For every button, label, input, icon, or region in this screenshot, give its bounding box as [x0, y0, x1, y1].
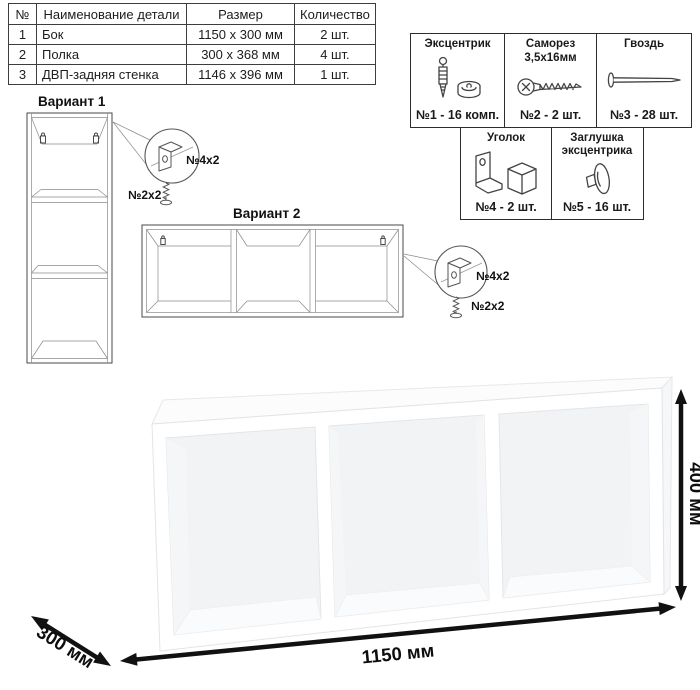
shelf-compartment-2	[329, 415, 489, 617]
col-header-name: Наименование детали	[37, 4, 187, 25]
variant1-inner-frame	[32, 113, 108, 363]
hardware-subtitle: 3,5х16мм	[524, 52, 576, 66]
hardware-title: Гвоздь	[624, 38, 664, 50]
shelf-compartment-3	[499, 404, 650, 598]
part-size: 1146 х 396 мм	[187, 65, 295, 85]
dimension-height: 400 мм	[675, 389, 700, 601]
part-num: 1	[9, 25, 37, 45]
hardware-count: №4 - 2 шт.	[475, 200, 536, 214]
part-name: Бок	[37, 25, 187, 45]
variant1-cabinet-outline	[27, 113, 112, 363]
hardware-title: Саморез	[526, 38, 575, 50]
hardware-count: №2 - 2 шт.	[520, 108, 581, 122]
part-name: ДВП-задняя стенка	[37, 65, 187, 85]
variant1-detail-callout: №4х2 №2х2	[113, 122, 220, 205]
width-dimension-label: 1150 мм	[361, 640, 435, 668]
part-name: Полка	[37, 45, 187, 65]
parts-table-header-row: № Наименование детали Размер Количество	[9, 4, 376, 25]
hardware-item-cam-cap: Заглушкаэксцентрика №5 - 16 шт.	[551, 127, 644, 220]
variant2-inner-frame	[147, 230, 399, 313]
col-header-size: Размер	[187, 4, 295, 25]
hardware-item-corner-bracket: Уголок №4 - 2 шт.	[460, 127, 552, 220]
part-size: 1150 х 300 мм	[187, 25, 295, 45]
col-header-qty: Количество	[295, 4, 376, 25]
shelf-compartment-1	[166, 427, 321, 635]
table-row: 1 Бок 1150 х 300 мм 2 шт.	[9, 25, 376, 45]
variant2-bracket-left-icon	[161, 236, 165, 245]
hardware-item-nail: Гвоздь №3 - 28 шт.	[596, 33, 692, 128]
height-dimension-label: 400 мм	[686, 462, 700, 525]
hardware-item-eccentric: Эксцентрик	[410, 33, 505, 128]
variant2-bracket-callout: №4х2	[476, 269, 510, 283]
nail-icon	[604, 52, 684, 108]
hardware-count: №5 - 16 шт.	[563, 200, 631, 214]
variant2-detail-callout: №4х2 №2х2	[404, 246, 510, 318]
part-num: 3	[9, 65, 37, 85]
variant2-bracket-right-icon	[381, 236, 385, 245]
variant2-screw-callout: №2х2	[471, 299, 505, 313]
part-qty: 2 шт.	[295, 25, 376, 45]
parts-table: № Наименование детали Размер Количество …	[8, 3, 376, 85]
variant1-screw-callout: №2х2	[128, 188, 162, 202]
hardware-count: №3 - 28 шт.	[610, 108, 678, 122]
part-qty: 4 шт.	[295, 45, 376, 65]
variant1-drawing: Вариант 1	[27, 94, 220, 363]
table-row: 3 ДВП-задняя стенка 1146 х 396 мм 1 шт.	[9, 65, 376, 85]
variant1-bracket-callout: №4х2	[186, 153, 220, 167]
part-qty: 1 шт.	[295, 65, 376, 85]
part-size: 300 х 368 мм	[187, 45, 295, 65]
variant2-title: Вариант 2	[233, 206, 300, 221]
variant1-shelves	[32, 190, 108, 359]
dimension-depth: 300 мм	[31, 616, 111, 672]
screw-icon	[161, 183, 172, 205]
hardware-title: Заглушка	[570, 132, 623, 144]
screw-icon	[515, 65, 587, 108]
depth-dimension-label: 300 мм	[33, 621, 98, 672]
variant1-title: Вариант 1	[38, 94, 106, 109]
variant2-drawing: Вариант 2	[142, 206, 510, 318]
part-num: 2	[9, 45, 37, 65]
cam-bolt-icon	[427, 52, 489, 108]
table-row: 2 Полка 300 х 368 мм 4 шт.	[9, 45, 376, 65]
hardware-panel: Эксцентрик	[410, 33, 693, 220]
hardware-count: №1 - 16 комп.	[416, 108, 499, 122]
cam-cap-icon	[574, 158, 620, 200]
variant2-cabinet-outline	[142, 225, 403, 317]
assembly-instruction-sheet: Вариант 1	[0, 0, 700, 690]
col-header-num: №	[9, 4, 37, 25]
variant1-top-perspective	[32, 118, 108, 145]
corner-bracket-icon	[468, 146, 544, 200]
variant2-perspective-lines	[147, 230, 399, 313]
hardware-title: Уголок	[487, 132, 525, 144]
hardware-title: Эксцентрик	[424, 38, 490, 50]
shelf-render	[152, 377, 672, 651]
screw-icon	[451, 297, 462, 318]
hardware-item-screw: Саморез3,5х16мм №2 - 2 шт.	[504, 33, 598, 128]
